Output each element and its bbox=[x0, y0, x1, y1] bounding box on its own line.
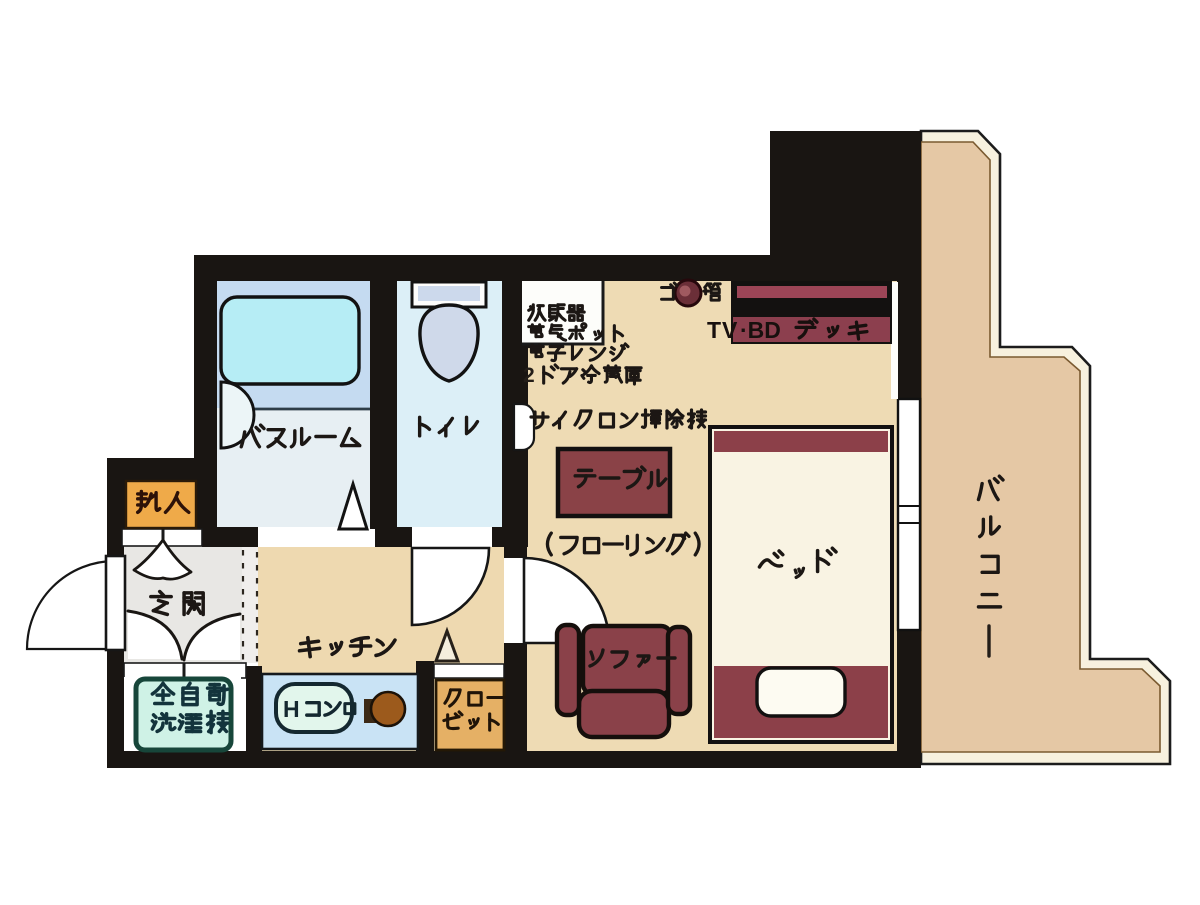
svg-text:2: 2 bbox=[523, 364, 535, 387]
svg-text:·BD: ·BD bbox=[740, 317, 781, 343]
svg-text:H: H bbox=[283, 696, 300, 722]
svg-text:TV: TV bbox=[707, 317, 738, 343]
